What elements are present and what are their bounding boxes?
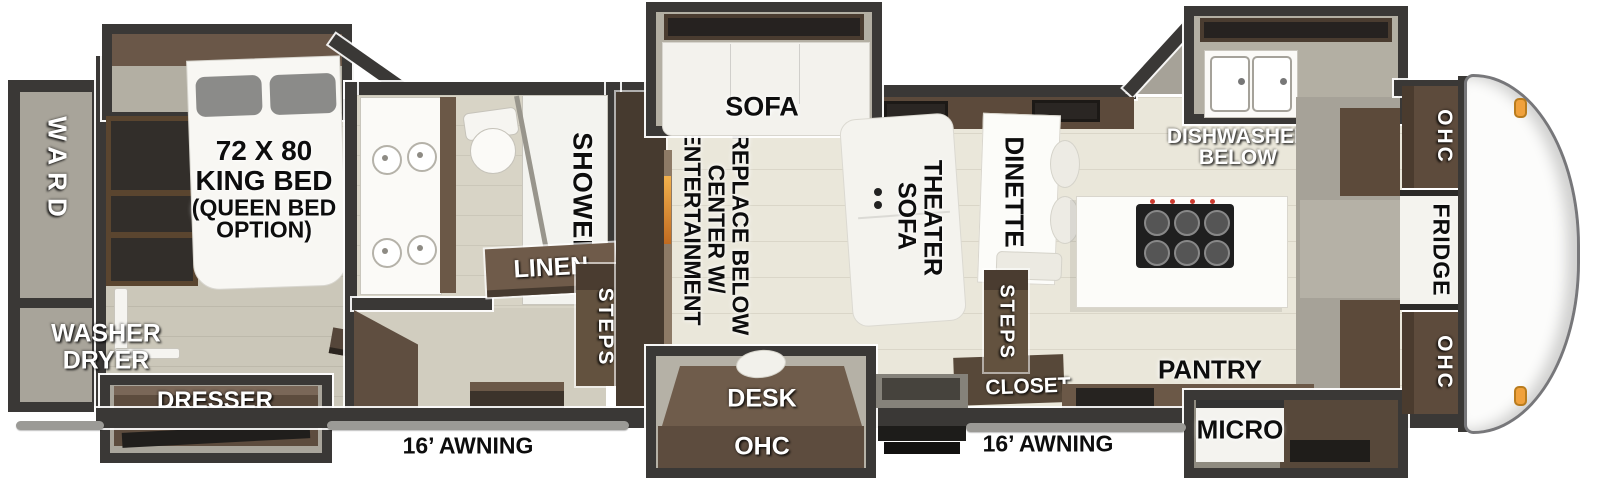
kitchen-sink-basin [1252,56,1292,112]
sink-drain [382,248,388,254]
vanity-cabinet-edge [440,97,456,293]
cooktop-knob [1210,199,1215,204]
kitchen-slideout-window [1200,18,1392,42]
burner [1144,210,1170,236]
micro-slideout-window [1290,440,1370,462]
entertainment-label-2: CENTER W/ [703,164,730,293]
front-ohc-top-label: OHC [1432,109,1456,165]
fireplace-glow [664,176,671,244]
burner [1174,210,1200,236]
cooktop-knob [1170,199,1175,204]
theater-sofa-cupholder [874,201,882,209]
entry-door-mat [882,378,960,400]
dinette-label: DINETTE [999,136,1030,247]
theater-sofa-label-2: SOFA [892,182,921,250]
vanity [360,97,442,295]
hall-dresser [470,382,564,410]
bedroom-window [106,116,198,286]
bedroom-window-mullion [108,232,196,238]
faucet [1280,78,1287,85]
sink-drain [417,245,423,251]
steps-bath-label: STEPS [593,288,617,367]
front-cap [1464,74,1580,434]
micro-label: MICRO [1197,415,1284,446]
sofa-label: SOFA [725,92,799,123]
kitchen-right-counter-mid [1300,200,1400,298]
pantry-counter-inset [1076,388,1154,408]
steps-main-label: STEPS [995,284,1018,360]
kitchen-sink-basin [1210,56,1250,112]
bath-hall-divider [352,298,492,310]
fridge-label: FRIDGE [1428,204,1455,297]
marker-light-bottom [1514,386,1527,406]
queen-bed-option-label-2: OPTION) [216,217,312,244]
faucet [1238,78,1245,85]
king-bed-size-label: 72 X 80 [216,135,313,167]
sink-drain [417,152,423,158]
burner [1144,240,1170,266]
king-bed-label: KING BED [196,165,333,197]
ward-label: WARD [42,116,73,223]
burner [1204,240,1230,266]
sofa-slideout-window [664,14,864,40]
awning-bar-left [16,421,104,430]
entry-steps [884,442,960,454]
dinette-chair [1050,140,1080,188]
kitchen-lower-cabinet [1340,300,1400,392]
theater-sofa-cupholder [874,188,882,196]
shower-label: SHOWER [567,132,598,260]
toilet-bowl [470,128,516,174]
entertainment-label-1: ENTERTAINMENT [679,130,706,325]
kitchen-upper-cabinet [1340,108,1400,196]
washer-dryer-label-2: DRYER [63,347,150,376]
theater-sofa-label-1: THEATER [918,160,947,276]
awning-bar-left [327,421,629,430]
desk-label: DESK [727,385,796,414]
cooktop-knob [1190,199,1195,204]
burner [1174,240,1200,266]
desk-ohc-label: OHC [734,433,790,462]
entertainment-label-3: FIREPLACE BELOW [727,113,754,335]
sink-drain [382,155,388,161]
pillow-right [269,73,336,115]
pantry-label: PANTRY [1158,355,1262,386]
closet-label: CLOSET [985,374,1071,401]
entry-steps [878,426,966,441]
awning-label-right: 16’ AWNING [983,431,1114,458]
bedroom-window-mullion [108,190,196,196]
burner [1204,210,1230,236]
cooktop-knob [1150,199,1155,204]
pillow-left [195,75,262,117]
rv-floorplan: 72 X 80 KING BED (QUEEN BED OPTION) DRES… [0,0,1600,479]
dishwasher-label-2: BELOW [1199,146,1277,170]
front-ohc-bottom-label: OHC [1432,335,1456,391]
awning-label-left: 16’ AWNING [403,433,534,460]
washer-dryer-label-1: WASHER [51,320,161,349]
marker-light-top [1514,98,1527,118]
